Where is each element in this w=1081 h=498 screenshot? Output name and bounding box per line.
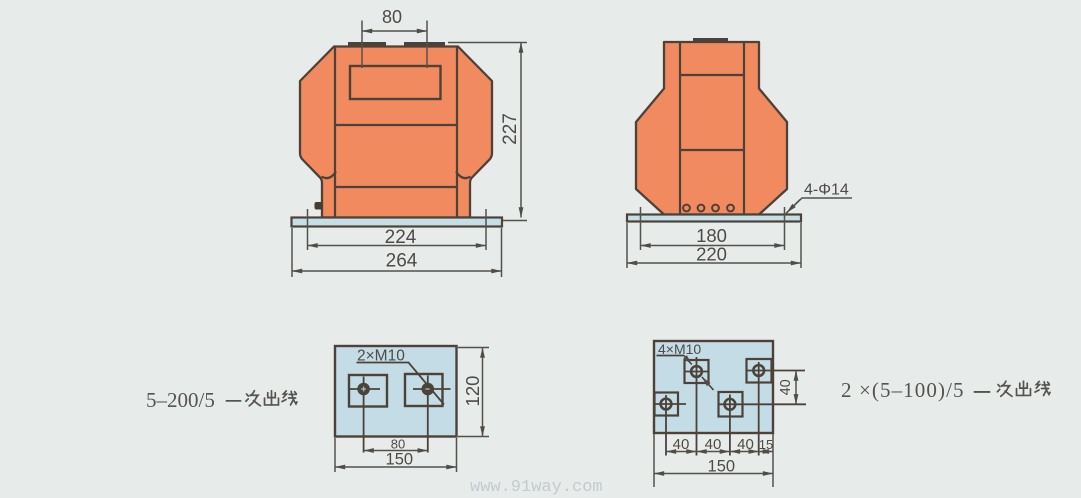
- svg-text:40: 40: [778, 379, 794, 395]
- svg-text:80: 80: [382, 7, 402, 27]
- svg-text:5–200/5: 5–200/5: [146, 388, 215, 412]
- svg-text:15: 15: [759, 437, 773, 452]
- svg-text:120: 120: [462, 376, 483, 407]
- svg-text:40: 40: [673, 436, 690, 453]
- svg-text:220: 220: [696, 244, 727, 265]
- svg-text:www.91way.com: www.91way.com: [470, 478, 603, 497]
- svg-text:40: 40: [737, 436, 754, 453]
- svg-text:227: 227: [500, 113, 521, 145]
- svg-text:80: 80: [391, 437, 405, 452]
- svg-text:150: 150: [386, 451, 414, 469]
- svg-text:264: 264: [386, 251, 418, 272]
- svg-text:4-Φ14: 4-Φ14: [804, 182, 849, 199]
- svg-text:40: 40: [705, 436, 722, 453]
- svg-text:150: 150: [708, 458, 736, 476]
- svg-text:2 ×(5–100)/5: 2 ×(5–100)/5: [841, 378, 965, 402]
- svg-text:224: 224: [385, 227, 417, 248]
